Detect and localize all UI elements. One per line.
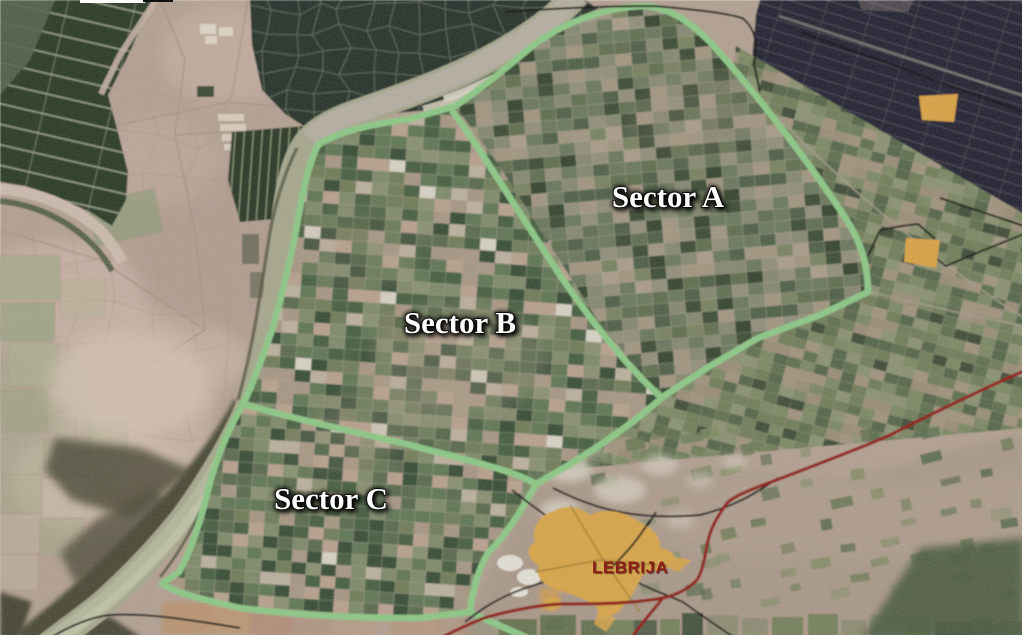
svg-text:Sector B: Sector B (404, 305, 516, 340)
svg-text:LEBRIJA: LEBRIJA (592, 558, 668, 577)
svg-text:Sector A: Sector A (612, 179, 725, 214)
svg-text:Sector C: Sector C (274, 481, 388, 516)
